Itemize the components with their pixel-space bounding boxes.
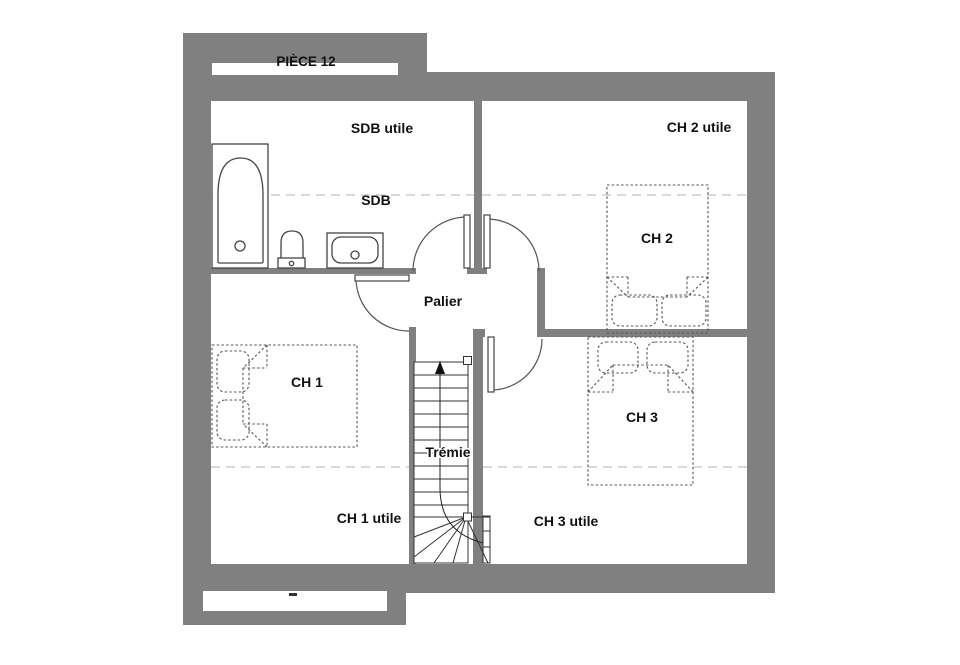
wall-right (747, 72, 775, 593)
door-arc-ch2 (487, 219, 539, 271)
label-sdb-utile: SDB utile (351, 120, 413, 136)
wall-bottom-right (406, 564, 775, 593)
sink-icon (327, 233, 383, 268)
label-piece-12: PIÈCE 12 (276, 54, 335, 69)
wall-divider-foot (467, 268, 487, 274)
door-leaf-ch2 (484, 215, 490, 268)
wall-left (183, 101, 211, 625)
label-sdb: SDB (361, 192, 391, 208)
toilet-icon (278, 231, 305, 268)
door-arc-sdb (413, 217, 467, 271)
wall-divider-ch2-ch3 (540, 329, 747, 337)
wall-palier-east (537, 268, 545, 337)
room-labels: PIÈCE 12 SDB utile CH 2 utile SDB CH 2 P… (276, 54, 731, 529)
door-leaf-ch1 (355, 275, 409, 281)
stair-post-bottom (464, 513, 472, 521)
bed-ch1-icon (212, 345, 357, 447)
bathroom-fixtures (212, 144, 383, 268)
label-palier: Palier (424, 293, 463, 309)
label-ch2: CH 2 (641, 230, 673, 246)
door-arc-ch1 (356, 278, 409, 331)
door-leaf-sdb (464, 215, 470, 268)
floor-plan: PIÈCE 12 SDB utile CH 2 utile SDB CH 2 P… (0, 0, 960, 665)
wall-stair-east (473, 337, 483, 564)
label-ch1: CH 1 (291, 374, 323, 390)
window-bottom-tick (289, 593, 297, 596)
wall-ch3-nw-stub (473, 329, 485, 337)
door-leaf-ch3 (488, 337, 494, 392)
stair-step-out (483, 516, 490, 563)
label-ch1-utile: CH 1 utile (337, 510, 402, 526)
door-arc-ch3 (491, 339, 542, 390)
label-ch3-utile: CH 3 utile (534, 513, 599, 529)
wall-divider-sdb-ch2 (474, 101, 482, 274)
wall-top-right (427, 72, 775, 101)
bed-ch2-icon (607, 185, 708, 333)
label-tremie: Trémie (425, 444, 470, 460)
stair-post-top (464, 357, 472, 365)
wall-sdb-south (211, 268, 412, 274)
stair-step-out-treads (483, 531, 490, 547)
bathtub-icon (212, 144, 268, 268)
label-ch3: CH 3 (626, 409, 658, 425)
label-ch2-utile: CH 2 utile (667, 119, 732, 135)
floor-plan-canvas: PIÈCE 12 SDB utile CH 2 utile SDB CH 2 P… (0, 0, 960, 665)
